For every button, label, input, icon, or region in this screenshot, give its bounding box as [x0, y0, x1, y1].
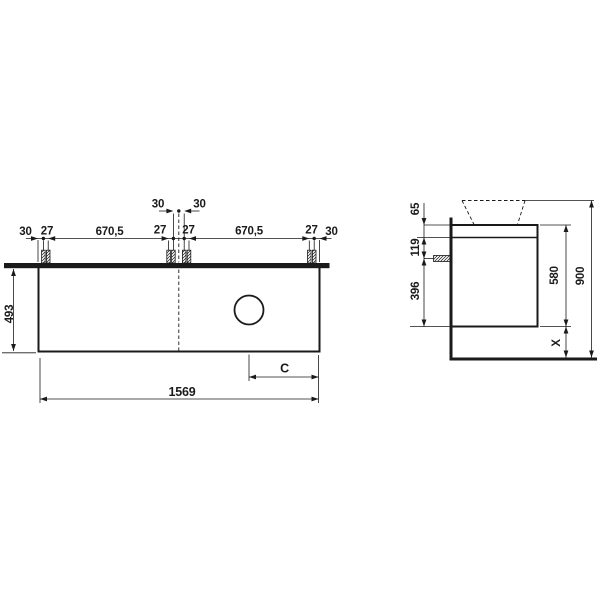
dim-height-493: 493: [2, 269, 36, 353]
dim-900: 900: [575, 201, 594, 358]
dim-label-119: 119: [410, 239, 422, 257]
dim-c: C: [249, 355, 319, 382]
dim-580-x: 580 X: [540, 225, 571, 358]
dim-label-65: 65: [410, 202, 422, 215]
front-view: 30 30 30 27 670,5 27 27 670,5 27 30: [2, 199, 338, 404]
dim-label-1569: 1569: [168, 385, 195, 399]
dim-label-493: 493: [4, 305, 16, 324]
dim-label-center-30-right: 30: [193, 199, 205, 211]
dim-label-27-left: 27: [41, 226, 53, 238]
dim-label-c: C: [280, 362, 289, 376]
countertop: [4, 263, 330, 268]
dim-label-580: 580: [549, 266, 561, 285]
dim-label-396: 396: [410, 282, 422, 301]
dim-label-center-30-left: 30: [152, 199, 164, 211]
dim-label-900: 900: [575, 267, 587, 286]
vanity-dimension-drawing: 30 30 30 27 670,5 27 27 670,5 27 30: [0, 0, 600, 600]
dim-label-30-far-right: 30: [325, 226, 337, 238]
side-view: 65 119 396 580 X 900: [410, 201, 597, 360]
dim-label-670-5-right: 670,5: [235, 226, 264, 238]
dim-label-670-5-left: 670,5: [96, 226, 125, 238]
wall-screw: [424, 256, 451, 262]
dim-label-x: X: [551, 339, 563, 347]
dim-label-27-right: 27: [305, 225, 317, 237]
dim-center-30-30: 30 30: [152, 199, 206, 214]
dim-width-1569: 1569: [40, 355, 319, 403]
dim-left-stack: 65 119 396: [410, 202, 451, 326]
basin-hole-circle: [235, 296, 264, 325]
washbasin-dashed-outline: [462, 201, 525, 225]
dim-label-27-mid-left: 27: [154, 225, 166, 237]
dim-label-30-far-left: 30: [19, 226, 31, 238]
cabinet-side-outline: [453, 225, 538, 327]
